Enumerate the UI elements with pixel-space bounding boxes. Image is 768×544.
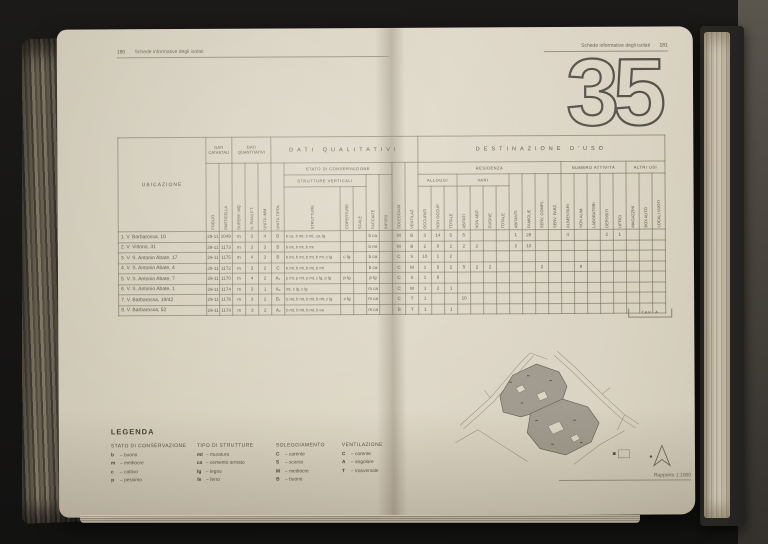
cell: 1 <box>419 293 432 304</box>
table-row: 8. V. Barbarossa, 52 29-11 1178 m 3 2 A₂… <box>119 302 666 315</box>
cell: A₂ <box>272 304 285 315</box>
cell: 3 <box>246 284 259 295</box>
cell <box>445 272 458 283</box>
cell: 14 <box>431 230 444 241</box>
cell: C <box>393 293 406 304</box>
cell <box>574 229 587 240</box>
cell: 1176 <box>220 294 233 305</box>
cell <box>613 271 626 282</box>
cell <box>379 251 392 262</box>
cell <box>549 303 562 314</box>
cell: m <box>233 284 246 295</box>
cell <box>470 230 483 241</box>
col-header-infissi: INFISSI <box>379 174 392 230</box>
left-page-header: 180 Schede informative degli isolati <box>117 48 389 58</box>
cell <box>496 251 509 262</box>
cell: B <box>271 231 284 242</box>
cell: 10 <box>418 251 431 262</box>
cell: m <box>232 263 245 274</box>
cell <box>510 272 523 283</box>
cell <box>432 293 445 304</box>
cell <box>561 250 574 261</box>
col-header-alloggi-totale: TOTALE <box>444 186 457 230</box>
cell <box>379 262 392 273</box>
cell: 1 <box>419 272 432 283</box>
cell: C <box>271 262 284 273</box>
cell <box>548 230 561 241</box>
cell <box>548 251 561 262</box>
cell <box>652 260 665 271</box>
cell <box>601 282 614 293</box>
cell: 2 <box>457 241 470 252</box>
cell <box>536 293 549 304</box>
cell: b ca <box>366 251 379 262</box>
col-header-coperture: COPERTURE <box>340 187 353 231</box>
cell: 3 <box>418 230 431 241</box>
cell: 2 <box>259 294 272 305</box>
cell <box>536 282 549 293</box>
cell: 4 <box>561 229 574 240</box>
table-sheet-tab: TAV. A <box>628 308 672 317</box>
cell <box>510 303 523 314</box>
cell: 3 <box>245 231 258 242</box>
cell <box>483 230 496 241</box>
row-ubicazione: 7. V. Barbarossa, 19/42 <box>119 294 207 305</box>
col-header-piani: N. PIANI F.T. <box>245 163 258 231</box>
cell: 2 <box>509 240 522 251</box>
legend-group-soleggiamento: SOLEGGIAMENTO Ccarente Sscarso Mmediocre… <box>276 442 342 485</box>
cell: T <box>406 304 419 315</box>
cell: C <box>393 283 406 294</box>
cell <box>562 292 575 303</box>
cell <box>600 240 613 251</box>
cell <box>600 250 613 261</box>
cell: p lg <box>341 273 354 284</box>
survey-table: UBICAZIONE DATI CATASTALI DATI QUANTITAT… <box>117 134 666 316</box>
cell: 3 <box>258 242 271 253</box>
cell: S <box>405 251 418 262</box>
cell <box>432 304 445 315</box>
cell: 1178 <box>220 305 233 316</box>
cell: B <box>393 304 406 315</box>
cell: 1 <box>613 229 626 240</box>
cell <box>652 239 665 250</box>
cell <box>549 272 562 283</box>
cell: b ca <box>366 262 379 273</box>
cell: 1 <box>445 283 458 294</box>
cell: A₂ <box>272 273 285 284</box>
col-header-vani-cucine: CUCINE <box>483 186 496 230</box>
cell <box>471 293 484 304</box>
cell <box>639 250 652 261</box>
cell <box>613 261 626 272</box>
cell: m <box>233 273 246 284</box>
legend: LEGENDA STATO DI CONSERVAZIONE bbuono mm… <box>111 426 411 486</box>
cell: m <box>232 252 245 263</box>
cell: 4 <box>258 231 271 242</box>
cell <box>587 229 600 240</box>
cell: 2 <box>483 261 496 272</box>
cell-strutture: b mt, b mt, b mt, b mt <box>284 262 340 273</box>
cell: 1 <box>445 304 458 315</box>
cell <box>497 282 510 293</box>
cell: 1 <box>259 284 272 295</box>
row-ubicazione: 2. V. Vittorio, 31 <box>118 242 206 253</box>
col-header-superficie: SUPERF. MQ <box>232 163 245 231</box>
cell: B <box>405 241 418 252</box>
cell <box>535 240 548 251</box>
legend-item: Mmediocre <box>276 468 342 477</box>
cell <box>484 293 497 304</box>
cell <box>522 251 535 262</box>
col-header-vani-totale: TOTALE <box>496 186 509 230</box>
cell <box>652 229 665 240</box>
cell <box>587 271 600 282</box>
col-header-unita-imm: UNITÀ IMM. <box>258 163 271 231</box>
col-header-alimentari: ALIMENTARI <box>561 173 574 229</box>
cell <box>614 282 627 293</box>
group-header-destinazione-uso: DESTINAZIONE D'USO <box>418 135 665 162</box>
cell: 1 <box>431 251 444 262</box>
cell <box>626 229 639 240</box>
row-ubicazione: 6. V. S. Antonio Abate, 1 <box>119 284 207 295</box>
cell: 5 <box>457 230 470 241</box>
cell <box>483 240 496 251</box>
cell <box>588 303 601 314</box>
cell <box>484 303 497 314</box>
legend-item: Ttrasversale <box>342 468 408 477</box>
col-header-servizi-parziali: SERV. PARZ. <box>548 174 561 230</box>
cell-strutture: b mt, b mt, b mt, b mt, c lg <box>285 294 341 305</box>
row-ubicazione: 1. V. Barbarossa, 10 <box>118 231 206 242</box>
group-header-residenza: RESIDENZA <box>418 162 561 175</box>
cell: m <box>233 305 246 316</box>
cell <box>497 303 510 314</box>
cell: 4 <box>246 273 259 284</box>
cell: 1 <box>419 304 432 315</box>
cell: 8 <box>431 241 444 252</box>
cell: m <box>232 231 245 242</box>
cell <box>509 261 522 272</box>
cell <box>354 273 367 284</box>
north-arrow-icon <box>649 443 675 469</box>
block-map <box>453 332 644 483</box>
cell: 2 <box>444 241 457 252</box>
cell <box>341 304 354 315</box>
cell <box>522 261 535 272</box>
cell <box>613 240 626 251</box>
cell: 2 <box>259 273 272 284</box>
book-spread: 180 Schede informative degli isolati Sch… <box>57 26 696 517</box>
col-header-laboratori: LABORATORI <box>587 173 600 229</box>
group-header-stato-conservazione: STATO DI CONSERVAZIONE <box>284 162 392 175</box>
row-ubicazione: 8. V. Barbarossa, 52 <box>119 305 207 316</box>
cell: 1170 <box>220 273 233 284</box>
col-header-strutture: STRUTTURE <box>284 187 340 231</box>
left-page-number: 180 <box>117 49 125 55</box>
cell: 1 <box>418 262 431 273</box>
cell: 29-11 <box>206 242 219 253</box>
cell <box>561 240 574 251</box>
col-header-ventilazione: VENTILAZ. <box>405 162 418 230</box>
right-page-number: 181 <box>659 42 667 48</box>
cell: B <box>405 230 418 241</box>
left-page-title: Schede informative degli isolati <box>135 49 204 55</box>
cell <box>340 262 353 273</box>
cell <box>484 282 497 293</box>
cell: c lg <box>340 252 353 263</box>
survey-table-header: UBICAZIONE DATI CATASTALI DATI QUANTITAT… <box>118 135 665 232</box>
cell <box>497 293 510 304</box>
cell <box>549 282 562 293</box>
cell: T <box>406 293 419 304</box>
cell <box>471 282 484 293</box>
cell: 2 <box>470 240 483 251</box>
cell: 29-11 <box>207 284 220 295</box>
cell: 2 <box>444 251 457 262</box>
cell <box>483 251 496 262</box>
cell <box>458 304 471 315</box>
cell: p lg <box>367 272 380 283</box>
cell: 5 <box>444 230 457 241</box>
cell <box>653 281 666 292</box>
cell <box>614 303 627 314</box>
legend-group-title: STATO DI CONSERVAZIONE <box>111 443 197 449</box>
cell <box>496 230 509 241</box>
cell <box>458 283 471 294</box>
col-header-alloggi-non-occupati: NON OCCUP. <box>431 186 444 230</box>
cell: C <box>392 251 405 262</box>
group-header-altri-usi: ALTRI USI <box>626 161 665 173</box>
cell <box>536 272 549 283</box>
cell: 29-11 <box>207 294 220 305</box>
cell <box>536 303 549 314</box>
col-header-non-alimentari: NON ALIM. <box>574 173 587 229</box>
cell <box>523 293 536 304</box>
cell <box>496 261 509 272</box>
group-header-alloggi: ALLOGGI <box>418 174 457 186</box>
row-ubicazione: 3. V. S. Antonio Abate, 17 <box>118 252 206 263</box>
cell: 3 <box>258 252 271 263</box>
cell <box>471 272 484 283</box>
cell: 1173 <box>219 242 232 253</box>
cell <box>588 282 601 293</box>
cell: 2 <box>259 305 272 316</box>
col-header-uffici: UFFICI <box>613 173 626 229</box>
cell <box>587 261 600 272</box>
cell <box>575 282 588 293</box>
cell <box>379 230 392 241</box>
cell <box>562 271 575 282</box>
cell <box>510 293 523 304</box>
cell: b ca <box>366 230 379 241</box>
legend-item: Bbuono <box>276 476 342 485</box>
cell: 1049 <box>219 231 232 242</box>
cell <box>341 283 354 294</box>
cell <box>354 283 367 294</box>
cell <box>601 292 614 303</box>
legend-group-stato: STATO DI CONSERVAZIONE bbuono mmediocre … <box>111 443 197 486</box>
cell: m <box>232 242 245 253</box>
cell <box>653 292 666 303</box>
col-header-scale: SCALE <box>353 187 366 231</box>
group-header-dati-quantitativi: DATI QUANTITATIVI <box>232 137 271 163</box>
col-header-magazzini: MAGAZZINI <box>626 173 639 229</box>
cell: M <box>405 262 418 273</box>
cell <box>600 261 613 272</box>
cell <box>510 282 523 293</box>
cell: 1 <box>509 230 522 241</box>
cell: 3 <box>245 242 258 253</box>
col-header-particella: PARTICELLA <box>219 163 232 231</box>
cell: 4 <box>245 252 258 263</box>
cell: A₂ <box>272 283 285 294</box>
legend-item: Sscarso <box>276 460 342 469</box>
book-photo: 180 Schede informative degli isolati Sch… <box>0 0 768 544</box>
legend-item: feferro <box>197 477 276 486</box>
cell <box>380 272 393 283</box>
cell: m <box>233 294 246 305</box>
cell <box>601 303 614 314</box>
cell: 2 <box>535 261 548 272</box>
cell: 10 <box>458 293 471 304</box>
cell <box>574 240 587 251</box>
legend-item: Ccarente <box>276 451 342 460</box>
col-header-servizi-completi: SERV. COMPL. <box>535 174 548 230</box>
cell: C <box>393 272 406 283</box>
cell <box>652 271 665 282</box>
legend-item: ppessimo <box>111 477 197 486</box>
map-scale-caption: Rapporto 1:1000 <box>559 472 691 481</box>
cell <box>549 293 562 304</box>
cell: B <box>271 252 284 263</box>
cell: 1 <box>419 283 432 294</box>
col-header-alloggi-occupati: OCCUPATI <box>418 186 431 230</box>
cell <box>458 272 471 283</box>
city-block-shape <box>500 364 599 456</box>
cell <box>380 304 393 315</box>
cell-strutture: b mt, b mt, b mt, b ca <box>285 304 341 315</box>
cell <box>484 272 497 283</box>
cell: 3 <box>246 294 259 305</box>
cell <box>457 251 470 262</box>
cell: 29-11 <box>206 231 219 242</box>
cell <box>535 230 548 241</box>
cell: B <box>271 241 284 252</box>
cell <box>587 250 600 261</box>
cell: 1172 <box>219 263 232 274</box>
col-header-soleggiamento: SOLEGGIAM. <box>392 162 405 230</box>
cell <box>626 261 639 272</box>
legend-group-strutture: TIPO DI STRUTTURE mtmuratura cacemento a… <box>197 443 276 486</box>
survey-table-body: 1. V. Barbarossa, 10 29-11 1049 m 3 4 B … <box>118 229 665 316</box>
cell <box>627 292 640 303</box>
page-edge-stack-right <box>704 32 730 518</box>
cell <box>639 229 652 240</box>
legend-item: Ccarente <box>342 451 408 460</box>
cell <box>471 303 484 314</box>
col-header-vani-non-abitati: NON ABIT. <box>470 186 483 230</box>
legend-group-ventilazione: VENTILAZIONE Ccarente Aangolare Ttrasver… <box>342 442 408 485</box>
block-number: 35 <box>555 52 671 133</box>
group-header-dati-qualitativi: DATI QUALITATIVI <box>271 136 418 163</box>
cell: m ca <box>367 304 380 315</box>
cell <box>652 250 665 261</box>
legend-group-title: TIPO DI STRUTTURE <box>197 443 276 449</box>
cell: M <box>392 230 405 241</box>
cell <box>575 292 588 303</box>
cell <box>353 252 366 263</box>
cell <box>523 282 536 293</box>
cell: m ca <box>367 293 380 304</box>
cell: 2 <box>444 262 457 273</box>
col-header-famiglie: FAMIGLIE <box>522 174 535 230</box>
col-header-vani-abitati: ABITATI <box>457 186 470 230</box>
cell <box>639 271 652 282</box>
cell: C <box>392 262 405 273</box>
cell <box>561 261 574 272</box>
cell <box>587 240 600 251</box>
cell <box>379 241 392 252</box>
cell: b mt <box>366 241 379 252</box>
cell: 2 <box>470 261 483 272</box>
cell: 29-11 <box>207 273 220 284</box>
cell <box>600 271 613 282</box>
cell <box>562 303 575 314</box>
cell <box>353 231 366 242</box>
cell <box>523 303 536 314</box>
legend-group-title: VENTILAZIONE <box>342 442 408 448</box>
cell <box>574 271 587 282</box>
cell: 3 <box>246 305 259 316</box>
cell: 3 <box>245 263 258 274</box>
cell: 29-11 <box>207 305 220 316</box>
cell: M <box>406 283 419 294</box>
detached-building <box>613 450 630 458</box>
cell: 1175 <box>219 252 232 263</box>
cell: m ca <box>367 283 380 294</box>
cell: c lg <box>341 294 354 305</box>
cell: M <box>392 241 405 252</box>
col-header-abitanti: ABITANTI <box>509 174 522 230</box>
cell <box>340 241 353 252</box>
group-header-dati-catastali: DATI CATASTALI <box>206 137 232 163</box>
cell: 29-11 <box>206 263 219 274</box>
cell <box>354 304 367 315</box>
cell-strutture: b mt, b mt, b mt <box>284 241 340 252</box>
col-header-box-auto: BOX AUTO <box>639 173 652 229</box>
cell: S <box>406 272 419 283</box>
cell <box>548 261 561 272</box>
cell <box>562 282 575 293</box>
cell <box>340 231 353 242</box>
cell <box>626 240 639 251</box>
col-header-unita-tipol: UNITÀ TIPOL. <box>271 163 284 231</box>
cell <box>613 250 626 261</box>
cell <box>523 272 536 283</box>
cell: 2 <box>258 263 271 274</box>
cell <box>626 250 639 261</box>
cell <box>626 271 639 282</box>
cell <box>639 240 652 251</box>
cell: 2 <box>418 241 431 252</box>
cell <box>353 241 366 252</box>
cell: 10 <box>522 240 535 251</box>
cell-strutture: p mt, p mt, p mt, c lg, p lg <box>285 273 341 284</box>
cell-strutture: b mt, b mt, b mt, b mt, c lg <box>284 252 340 263</box>
legend-title: LEGENDA <box>111 426 411 437</box>
cell <box>627 282 640 293</box>
